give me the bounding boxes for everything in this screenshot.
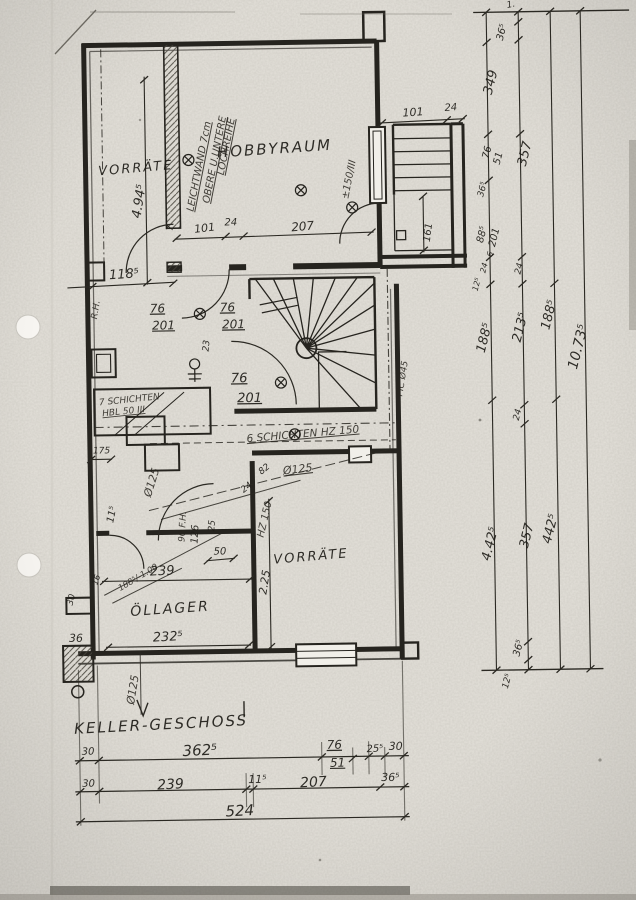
floor-plan-canvas: VORRÄTE HOBBYRAUM ÖLLAGER VORRÄTE KELLER… xyxy=(0,0,636,900)
scanned-blueprint-page: VORRÄTE HOBBYRAUM ÖLLAGER VORRÄTE KELLER… xyxy=(0,0,636,900)
scan-artifacts xyxy=(0,0,636,900)
